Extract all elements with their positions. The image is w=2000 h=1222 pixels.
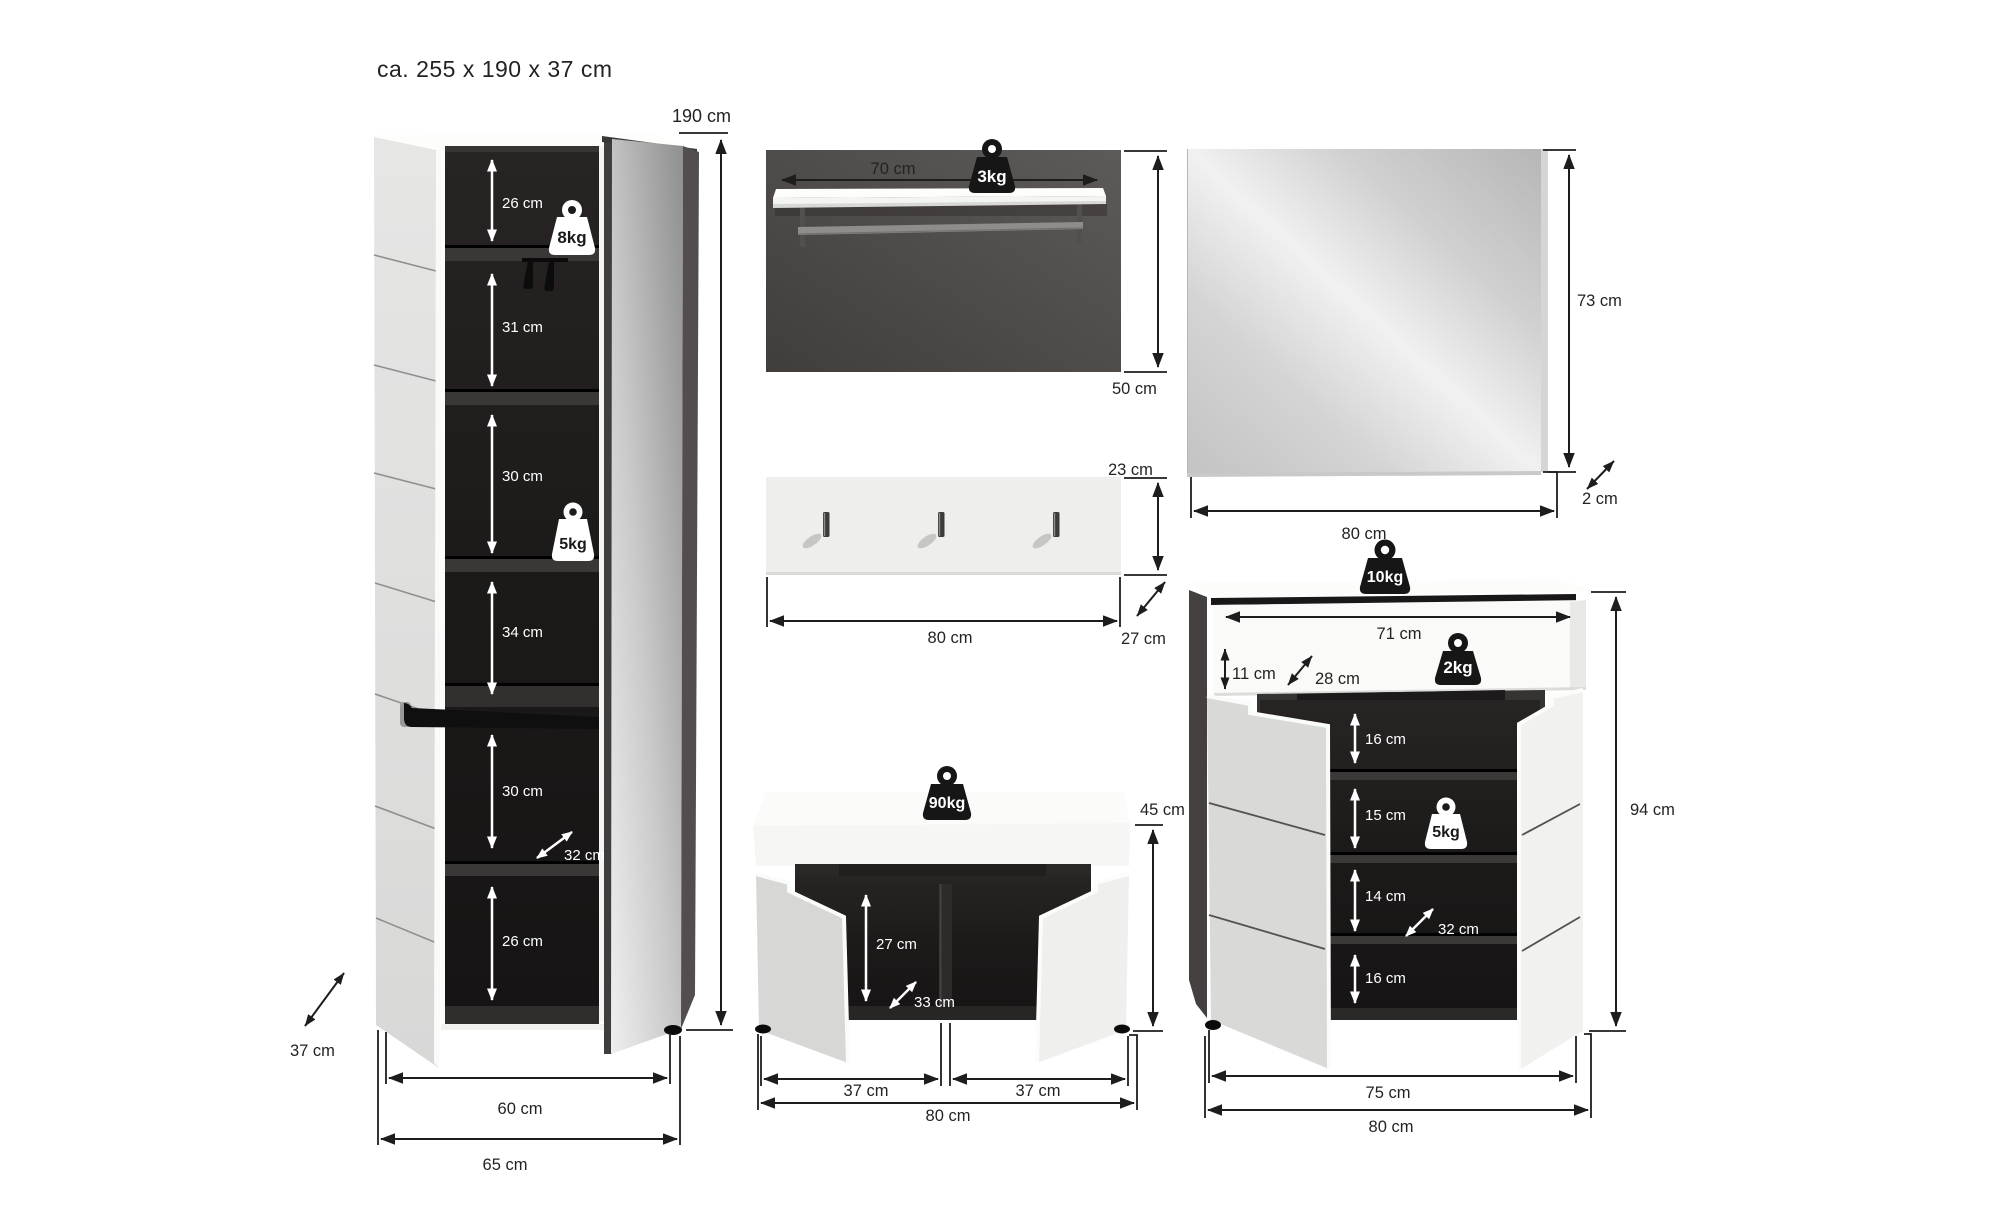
svg-text:11 cm: 11 cm: [1232, 665, 1276, 683]
svg-text:32 cm: 32 cm: [1438, 921, 1479, 938]
svg-text:14 cm: 14 cm: [1365, 888, 1406, 905]
svg-text:32 cm: 32 cm: [564, 847, 605, 864]
svg-text:190 cm: 190 cm: [672, 106, 731, 126]
svg-text:26 cm: 26 cm: [502, 933, 543, 950]
svg-text:94 cm: 94 cm: [1630, 801, 1675, 819]
svg-text:26 cm: 26 cm: [502, 195, 543, 212]
svg-text:37 cm: 37 cm: [290, 1042, 335, 1060]
svg-text:73 cm: 73 cm: [1577, 292, 1622, 310]
svg-text:34 cm: 34 cm: [502, 624, 543, 641]
svg-text:50 cm: 50 cm: [1112, 380, 1157, 398]
svg-text:30 cm: 30 cm: [502, 468, 543, 485]
svg-text:5kg: 5kg: [1432, 824, 1460, 841]
svg-text:90kg: 90kg: [929, 795, 965, 812]
svg-text:80 cm: 80 cm: [928, 629, 973, 647]
svg-text:10kg: 10kg: [1367, 569, 1403, 586]
svg-text:16 cm: 16 cm: [1365, 970, 1406, 987]
svg-text:65 cm: 65 cm: [483, 1156, 528, 1174]
svg-text:2kg: 2kg: [1443, 658, 1472, 677]
svg-text:8kg: 8kg: [557, 228, 586, 247]
svg-text:15 cm: 15 cm: [1365, 807, 1406, 824]
svg-text:80 cm: 80 cm: [1342, 525, 1387, 543]
svg-text:37 cm: 37 cm: [1016, 1082, 1061, 1100]
svg-text:16 cm: 16 cm: [1365, 731, 1406, 748]
svg-text:28 cm: 28 cm: [1315, 670, 1360, 688]
svg-text:80 cm: 80 cm: [1369, 1118, 1414, 1136]
svg-text:2 cm: 2 cm: [1582, 490, 1618, 508]
svg-text:31 cm: 31 cm: [502, 319, 543, 336]
svg-text:5kg: 5kg: [559, 536, 587, 553]
svg-text:27 cm: 27 cm: [876, 936, 917, 953]
svg-text:37 cm: 37 cm: [844, 1082, 889, 1100]
svg-text:3kg: 3kg: [977, 167, 1006, 186]
svg-text:ca. 255 x 190 x 37 cm: ca. 255 x 190 x 37 cm: [377, 56, 613, 82]
svg-text:60 cm: 60 cm: [498, 1100, 543, 1118]
svg-text:70 cm: 70 cm: [871, 160, 916, 178]
svg-text:71 cm: 71 cm: [1377, 625, 1422, 643]
svg-text:30 cm: 30 cm: [502, 783, 543, 800]
svg-text:45 cm: 45 cm: [1140, 801, 1185, 819]
svg-text:75 cm: 75 cm: [1366, 1084, 1411, 1102]
svg-text:80 cm: 80 cm: [926, 1107, 971, 1125]
svg-text:33 cm: 33 cm: [914, 994, 955, 1011]
svg-text:27 cm: 27 cm: [1121, 630, 1166, 648]
svg-text:23 cm: 23 cm: [1108, 461, 1153, 479]
